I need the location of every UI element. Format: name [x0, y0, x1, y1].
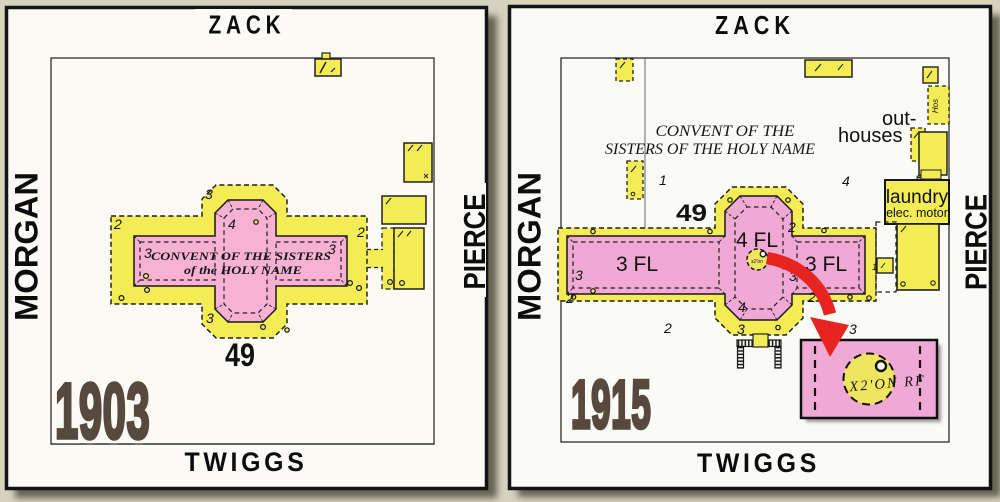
svg-text:CONVENT OF THE: CONVENT OF THE [656, 123, 795, 140]
svg-text:1915: 1915 [571, 365, 651, 443]
svg-text:4: 4 [228, 216, 236, 232]
svg-text:of the HOLY NAME: of the HOLY NAME [184, 265, 302, 277]
svg-text:3 FL: 3 FL [616, 253, 658, 276]
svg-text:3: 3 [737, 321, 745, 337]
svg-text:49: 49 [225, 337, 255, 373]
svg-text:4: 4 [738, 299, 746, 315]
svg-text:Hos: Hos [931, 99, 940, 113]
svg-text:3: 3 [206, 310, 214, 326]
svg-text:TWIGGS: TWIGGS [697, 448, 820, 478]
svg-text:2: 2 [787, 219, 796, 235]
svg-text:49: 49 [676, 200, 707, 227]
svg-text:ZACK: ZACK [209, 10, 286, 40]
svg-text:2: 2 [356, 224, 365, 240]
svg-text:SISTERS OF THE HOLY NAME: SISTERS OF THE HOLY NAME [605, 141, 815, 158]
svg-text:3: 3 [575, 267, 583, 283]
svg-text:PIERCE: PIERCE [457, 194, 492, 290]
svg-text:3: 3 [849, 321, 857, 337]
svg-text:x2'on: x2'on [750, 259, 763, 265]
svg-text:laundry: laundry [886, 187, 949, 208]
svg-text:MORGAN: MORGAN [9, 172, 45, 321]
svg-text:elec. motor: elec. motor [886, 206, 948, 220]
svg-text:1: 1 [659, 172, 667, 188]
svg-text:2: 2 [113, 216, 122, 232]
svg-text:TWIGGS: TWIGGS [185, 447, 308, 477]
svg-text:2: 2 [663, 320, 672, 336]
svg-text:ZACK: ZACK [715, 10, 795, 40]
svg-text:MORGAN: MORGAN [512, 172, 548, 321]
svg-text:3: 3 [205, 186, 213, 202]
svg-text:1903: 1903 [55, 368, 150, 455]
svg-text:4 FL: 4 FL [736, 229, 778, 252]
svg-text:3: 3 [144, 245, 152, 261]
svg-text:2: 2 [565, 290, 574, 306]
svg-text:houses: houses [838, 125, 903, 147]
svg-text:4: 4 [842, 173, 850, 189]
svg-text:PIERCE: PIERCE [959, 194, 994, 290]
svg-text:3: 3 [328, 241, 336, 257]
svg-text:CONVENT OF THE SISTERS: CONVENT OF THE SISTERS [151, 249, 331, 263]
